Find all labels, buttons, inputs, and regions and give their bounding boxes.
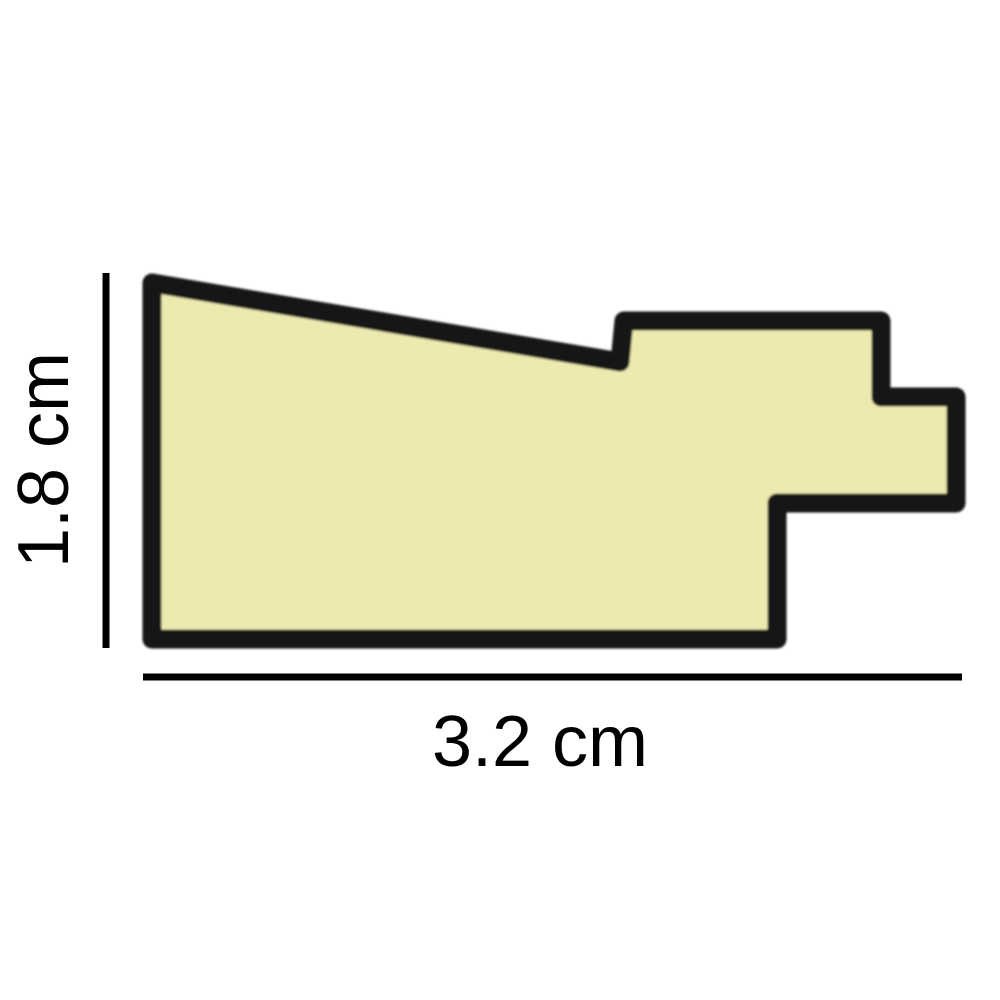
vertical-dimension-label: 1.8 cm [4,352,84,568]
diagram-canvas: 1.8 cm 3.2 cm [0,0,1000,1000]
moulding-cross-section-diagram: 1.8 cm 3.2 cm [0,0,1000,1000]
moulding-profile-shape [152,283,956,639]
horizontal-dimension-label: 3.2 cm [432,702,648,782]
